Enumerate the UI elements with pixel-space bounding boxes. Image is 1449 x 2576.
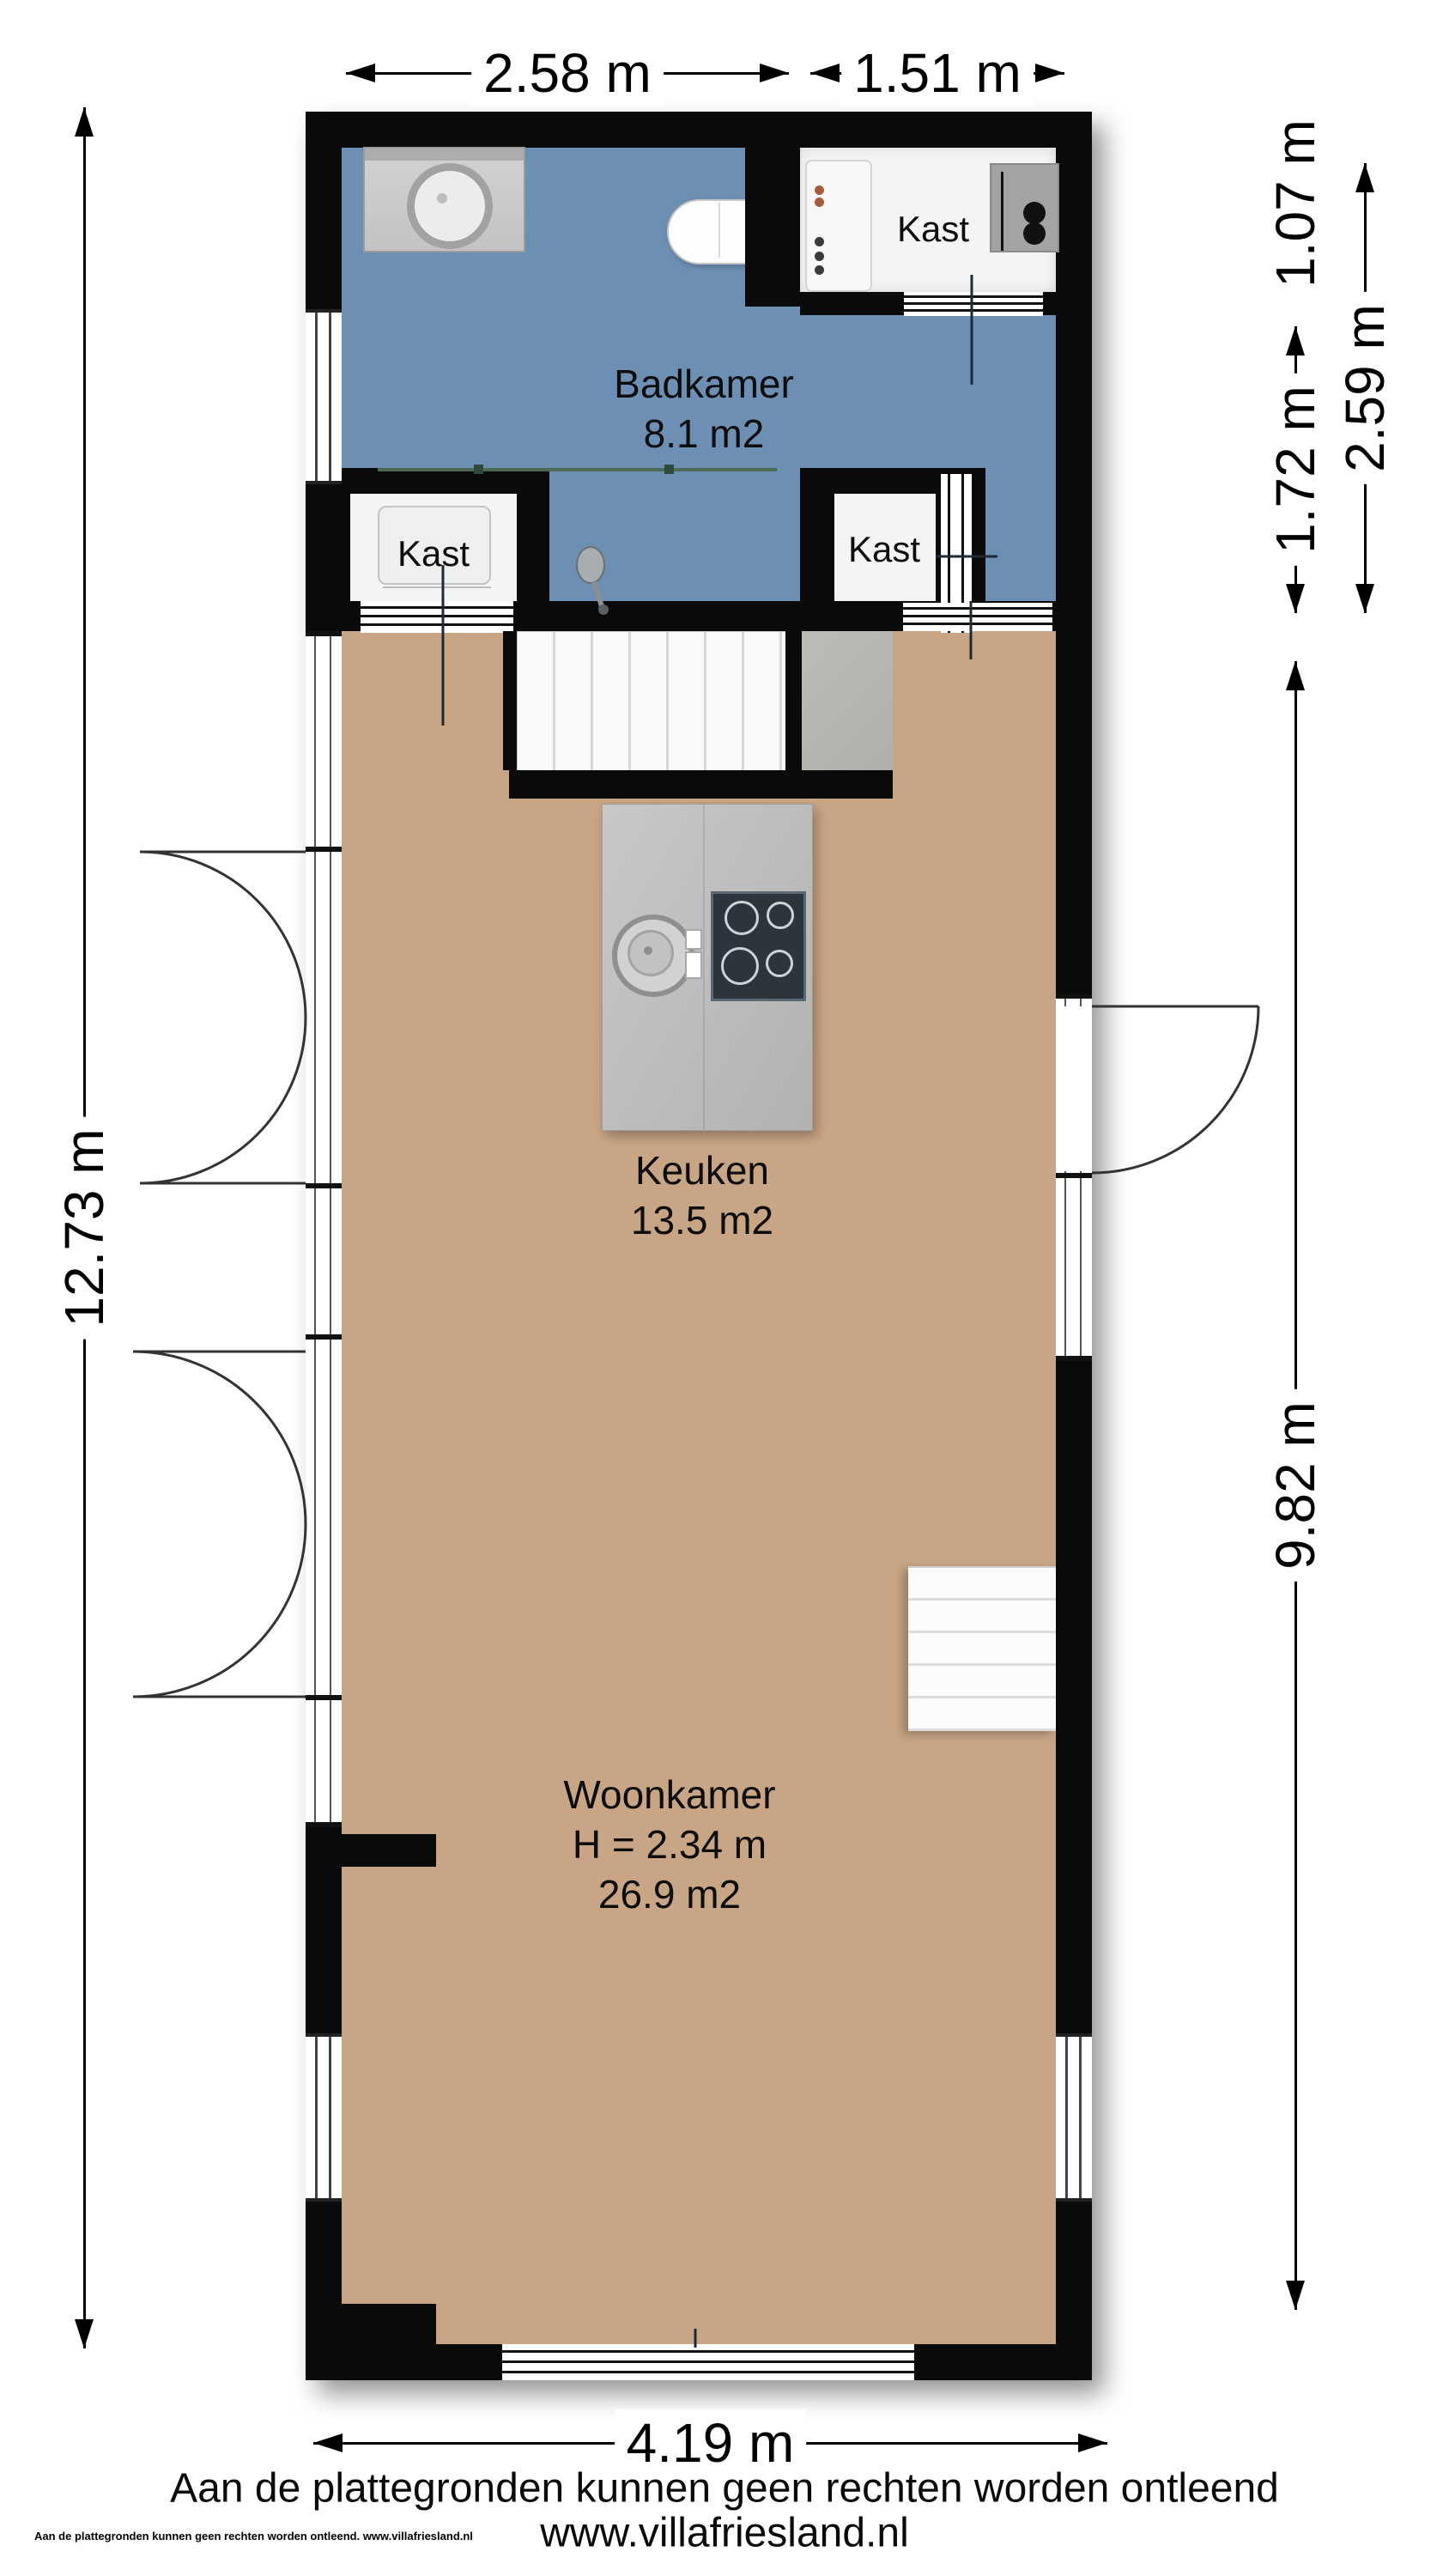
toilet-tank-line: [718, 203, 720, 258]
floorplan-page: Kast Kast Kast: [0, 0, 1449, 2576]
stairs-upper: [517, 631, 787, 772]
window-bottom: [502, 2344, 914, 2380]
watermark-text: Aan de plattegronden kunnen geen rechten…: [34, 2530, 473, 2543]
disclaimer-text: Aan de plattegronden kunnen geen rechten…: [170, 2465, 1279, 2512]
closet-right-label: Kast: [848, 529, 920, 570]
keuken-label: Keuken 13.5 m2: [631, 1145, 773, 1245]
woonkamer-label: Woonkamer H = 2.34 m 26.9 m2: [563, 1770, 775, 1919]
toilet-icon: [667, 199, 754, 264]
dryer-divider-line: [1001, 172, 1003, 251]
cooktop-icon: [711, 891, 806, 1001]
stairs-mid-wall: [785, 631, 802, 770]
boiler-dot-orange: [815, 185, 824, 195]
boiler-dot-dark: [815, 237, 824, 246]
badkamer-label: Badkamer 8.1 m2: [614, 359, 794, 459]
closet-top-label: Kast: [897, 209, 969, 250]
window-left-bottom: [306, 2033, 342, 2202]
faucet-icon: [685, 929, 702, 950]
closet-left-sliding-door: [361, 601, 513, 633]
boiler-icon: [805, 160, 872, 292]
closet-left-shelf-line: [383, 586, 491, 588]
dryer-knob: [1023, 202, 1046, 224]
dryer-knob: [1023, 222, 1046, 245]
bathroom-entry-sliding-door: [903, 603, 1052, 631]
stairs-landing: [802, 631, 893, 770]
sink-drain: [644, 946, 652, 955]
wall-stub-left: [342, 1834, 436, 1867]
door-opening-right: [1056, 1006, 1092, 1171]
boiler-dot-dark: [815, 265, 824, 275]
boiler-dot-dark: [815, 252, 824, 261]
bathroom-stub-wall: [745, 112, 800, 307]
window-right-bottom: [1056, 2033, 1092, 2202]
glass-facade-left: [306, 631, 342, 1827]
washer-door-hinge: [437, 193, 447, 204]
stairs-lower-wall: [509, 770, 893, 799]
website-text: www.villafriesland.nl: [540, 2510, 909, 2557]
faucet-handle: [685, 951, 702, 979]
boiler-dot-orange: [815, 197, 824, 207]
washing-machine-icon: [363, 147, 525, 252]
stairs-left-wall: [503, 631, 517, 770]
closet-left-label: Kast: [397, 533, 470, 574]
closet-top-sliding-door: [904, 292, 1043, 316]
stairs-lower: [908, 1566, 1056, 1731]
window-left-top: [306, 309, 342, 484]
washer-panel: [365, 149, 524, 161]
washer-drum: [407, 163, 493, 249]
wall-stub-bottom-left: [342, 2304, 436, 2344]
